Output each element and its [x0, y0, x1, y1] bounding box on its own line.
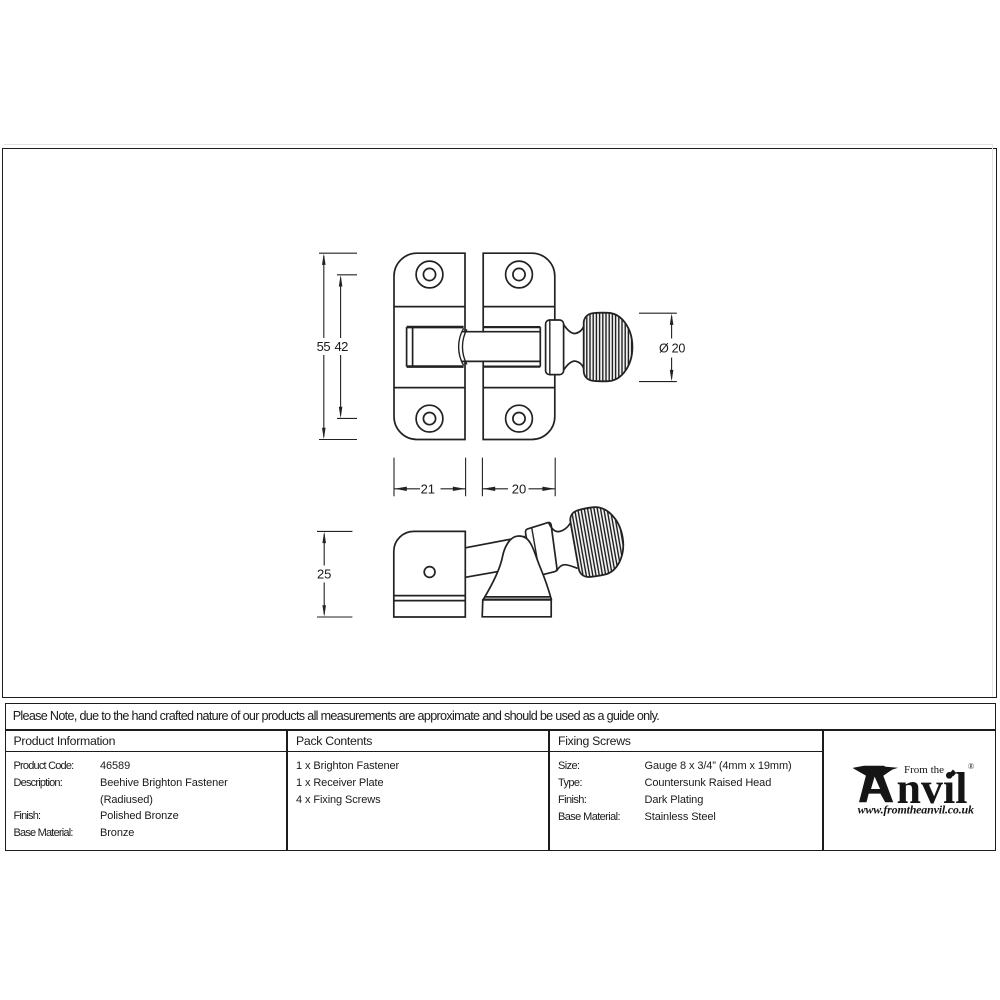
svg-text:www.fromtheanvil.co.uk: www.fromtheanvil.co.uk — [858, 803, 974, 817]
svg-text:21: 21 — [421, 482, 435, 497]
svg-text:20: 20 — [512, 482, 526, 497]
svg-text:55: 55 — [317, 339, 331, 354]
svg-text:From the: From the — [904, 764, 944, 776]
svg-text:42: 42 — [334, 339, 348, 354]
svg-text:Ø 20: Ø 20 — [659, 341, 685, 355]
svg-text:25: 25 — [317, 566, 331, 581]
svg-text:®: ® — [968, 762, 974, 771]
